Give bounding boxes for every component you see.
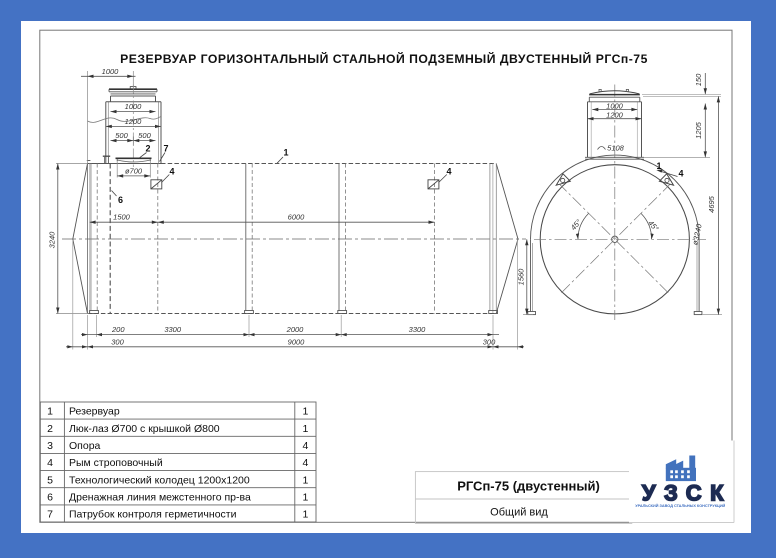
- svg-text:1200: 1200: [606, 110, 624, 119]
- svg-text:1: 1: [302, 509, 308, 521]
- svg-text:1: 1: [657, 161, 662, 171]
- svg-text:45°: 45°: [569, 218, 583, 232]
- svg-text:6: 6: [118, 195, 123, 205]
- svg-text:Люк-лаз Ø700 с крышкой Ø800: Люк-лаз Ø700 с крышкой Ø800: [69, 423, 220, 435]
- svg-text:1: 1: [302, 491, 308, 503]
- svg-text:Рым строповочный: Рым строповочный: [69, 457, 163, 469]
- svg-text:200: 200: [111, 325, 125, 334]
- svg-text:1205: 1205: [694, 121, 703, 139]
- svg-text:4: 4: [302, 440, 308, 452]
- svg-text:4: 4: [447, 167, 452, 177]
- svg-text:УЗСК: УЗСК: [642, 480, 732, 505]
- svg-text:1000: 1000: [125, 102, 143, 111]
- svg-text:ø3240: ø3240: [690, 222, 703, 245]
- svg-text:150: 150: [694, 73, 703, 86]
- svg-text:5108: 5108: [607, 144, 625, 153]
- svg-text:1: 1: [302, 423, 308, 435]
- svg-text:9000: 9000: [288, 337, 306, 346]
- svg-text:2000: 2000: [286, 325, 305, 334]
- svg-text:Опора: Опора: [69, 440, 101, 452]
- svg-text:Общий вид: Общий вид: [490, 507, 548, 519]
- svg-text:2: 2: [146, 144, 151, 154]
- svg-text:ø700: ø700: [125, 166, 143, 175]
- svg-text:7: 7: [164, 144, 169, 154]
- svg-text:Резервуар: Резервуар: [69, 406, 120, 418]
- svg-text:4: 4: [679, 169, 684, 179]
- svg-text:1000: 1000: [102, 67, 120, 76]
- svg-text:1560: 1560: [517, 268, 526, 286]
- svg-text:Патрубок контроля герметичност: Патрубок контроля герметичности: [69, 509, 237, 521]
- svg-text:500: 500: [115, 131, 128, 140]
- svg-text:300: 300: [483, 337, 496, 346]
- svg-text:1: 1: [47, 406, 53, 418]
- svg-text:УРАЛЬСКИЙ ЗАВОД СТАЛЬНЫХ КОНСТ: УРАЛЬСКИЙ ЗАВОД СТАЛЬНЫХ КОНСТРУКЦИЙ: [635, 504, 725, 508]
- svg-text:2: 2: [47, 423, 53, 435]
- svg-text:Технологический колодец 1200х1: Технологический колодец 1200х1200: [69, 474, 250, 486]
- svg-text:300: 300: [111, 337, 124, 346]
- svg-text:РГСп-75 (двустенный): РГСп-75 (двустенный): [457, 479, 600, 494]
- svg-text:Дренажная линия межстенного пр: Дренажная линия межстенного пр-ва: [69, 491, 251, 503]
- svg-text:РЕЗЕРВУАР ГОРИЗОНТАЛЬНЫЙ СТАЛЬ: РЕЗЕРВУАР ГОРИЗОНТАЛЬНЫЙ СТАЛЬНОЙ ПОДЗЕМ…: [120, 51, 648, 66]
- svg-text:3300: 3300: [164, 325, 182, 334]
- svg-text:500: 500: [138, 131, 151, 140]
- svg-text:4: 4: [47, 457, 53, 469]
- svg-text:7: 7: [47, 509, 53, 521]
- svg-text:1: 1: [302, 406, 308, 418]
- svg-text:3: 3: [47, 440, 53, 452]
- svg-text:4695: 4695: [707, 195, 716, 213]
- svg-text:45°: 45°: [646, 219, 660, 233]
- svg-text:1: 1: [302, 474, 308, 486]
- svg-text:5: 5: [47, 474, 53, 486]
- svg-text:3240: 3240: [48, 231, 57, 249]
- svg-text:1200: 1200: [125, 117, 143, 126]
- svg-text:1500: 1500: [113, 213, 131, 222]
- svg-text:4: 4: [170, 167, 175, 177]
- svg-text:3300: 3300: [409, 325, 427, 334]
- svg-text:1: 1: [284, 148, 289, 158]
- svg-text:4: 4: [302, 457, 308, 469]
- svg-text:6000: 6000: [288, 213, 306, 222]
- svg-text:1000: 1000: [606, 101, 624, 110]
- svg-text:6: 6: [47, 491, 53, 503]
